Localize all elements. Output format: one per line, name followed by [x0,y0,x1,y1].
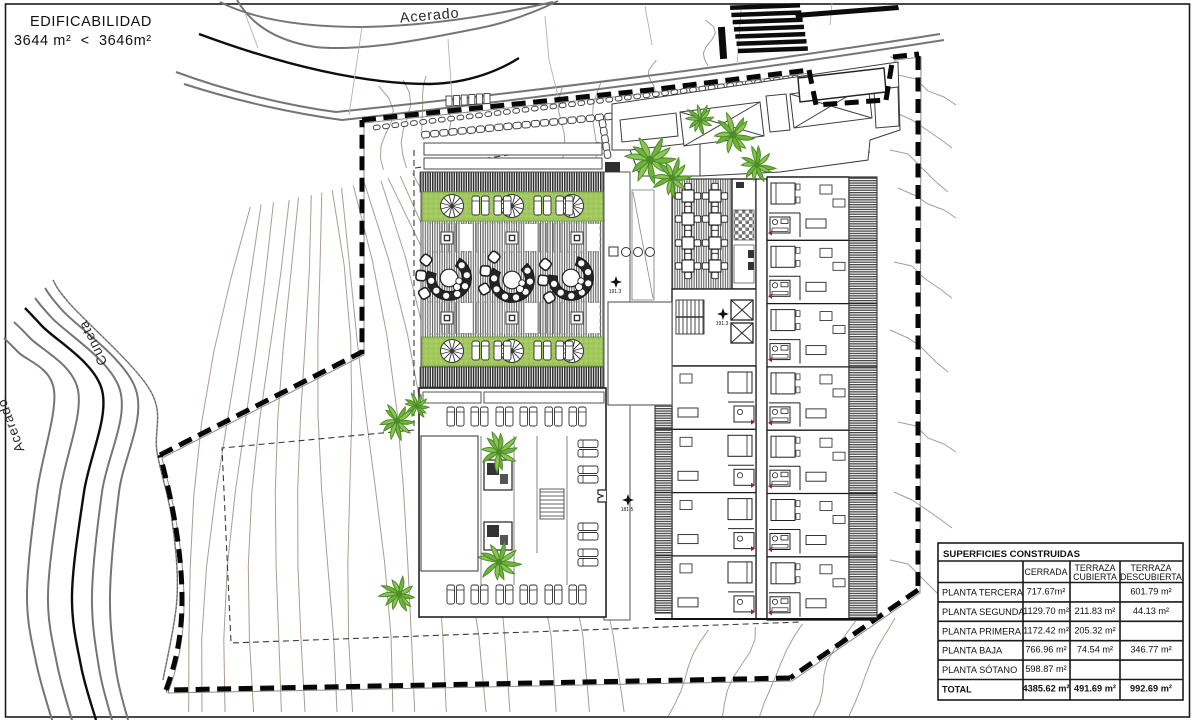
svg-text:3644 m² < 3646m²: 3644 m² < 3646m² [14,33,152,49]
svg-text:TOTAL: TOTAL [942,685,972,695]
svg-text:1172.42 m²: 1172.42 m² [1023,625,1069,635]
svg-text:PLANTA PRIMERA: PLANTA PRIMERA [942,626,1022,636]
svg-text:491.69 m²: 491.69 m² [1074,684,1116,694]
svg-text:601.79 m²: 601.79 m² [1130,587,1171,597]
svg-text:191.3: 191.3 [716,321,729,327]
svg-text:598.87 m²: 598.87 m² [1025,664,1066,674]
svg-text:4385.62 m²: 4385.62 m² [1023,684,1070,694]
svg-text:CERRADA: CERRADA [1024,567,1067,577]
svg-text:205.32 m²: 205.32 m² [1074,625,1115,635]
svg-text:211.83 m²: 211.83 m² [1075,606,1116,616]
svg-text:DESCUBIERTA: DESCUBIERTA [1120,572,1182,582]
svg-text:766.96 m²: 766.96 m² [1025,645,1066,655]
svg-text:PLANTA SÓTANO: PLANTA SÓTANO [942,665,1017,675]
svg-text:EDIFICABILIDAD: EDIFICABILIDAD [30,14,152,30]
svg-text:1129.70 m²: 1129.70 m² [1023,606,1069,616]
svg-text:992.69 m²: 992.69 m² [1130,684,1172,694]
svg-text:SUPERFICIES CONSTRUIDAS: SUPERFICIES CONSTRUIDAS [943,549,1081,560]
svg-text:191.3: 191.3 [609,289,622,295]
svg-text:CUBIERTA: CUBIERTA [1073,572,1117,582]
svg-text:74.54 m²: 74.54 m² [1077,645,1113,655]
svg-text:717.67m²: 717.67m² [1027,587,1066,597]
svg-text:PLANTA TERCERA: PLANTA TERCERA [942,588,1024,598]
svg-text:44.13 m²: 44.13 m² [1133,606,1169,616]
svg-text:181.5: 181.5 [621,507,634,513]
svg-text:PLANTA BAJA: PLANTA BAJA [942,646,1003,656]
svg-text:PLANTA SEGUNDA: PLANTA SEGUNDA [942,607,1025,617]
svg-text:346.77 m²: 346.77 m² [1130,645,1171,655]
